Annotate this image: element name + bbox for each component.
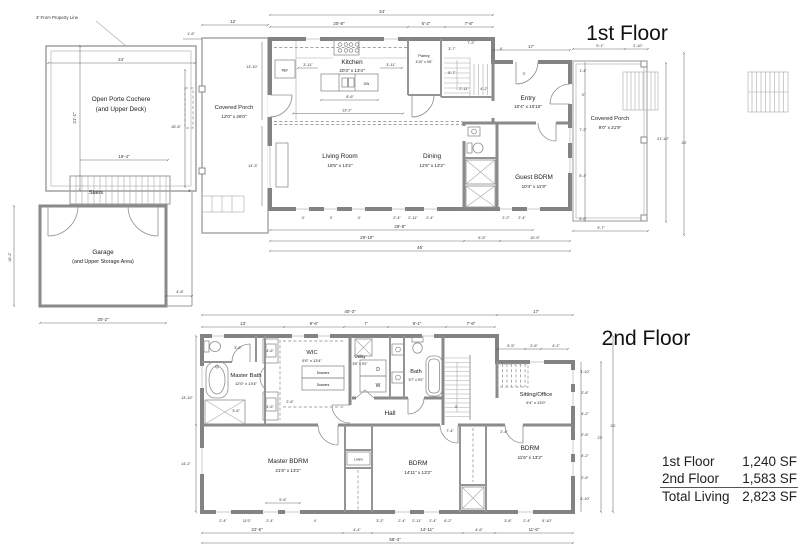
- dim-label: 29'-10": [360, 235, 374, 240]
- dim-label: 2'-4": [219, 519, 227, 523]
- room-label-covered-porch-right: Covered Porch: [591, 116, 630, 122]
- dim-label: 5'-6": [279, 498, 287, 502]
- dim-label: 11'0": [243, 519, 252, 523]
- dim-label: 6'-2": [422, 21, 431, 26]
- dim-label: 22'-6": [251, 527, 263, 532]
- room-size-master-bdrm: 21'6" x 13'2": [275, 468, 301, 473]
- dim-label: 4': [314, 519, 317, 523]
- dim-label: 19'-4": [118, 154, 130, 159]
- dim-label: 2'-6": [581, 391, 589, 395]
- room-label-wic: WIC: [306, 350, 317, 356]
- area-row-label: 2nd Floor: [662, 471, 720, 486]
- dim-label: 13': [240, 321, 246, 326]
- dim-label: 7': [364, 321, 367, 326]
- dim-label: 2'-11": [412, 519, 422, 523]
- dim-label: 4': [500, 47, 503, 51]
- dim-label: 14'-2": [181, 462, 191, 466]
- dim-label: 4'-2": [480, 87, 488, 91]
- area-row-label: Total Living: [662, 489, 730, 504]
- dim-label: 13'-10": [181, 396, 193, 400]
- dim-label: 20'-8": [333, 21, 345, 26]
- room-size-covered-porch-left: 12'0" x 26'0": [221, 114, 247, 119]
- property-line-note: 3' From Property Line: [36, 15, 79, 20]
- area-row-label: 1st Floor: [662, 454, 715, 469]
- dim-label: 17': [528, 44, 534, 49]
- dim-label: 4'-2": [552, 344, 560, 348]
- dim-label: 2'-4": [398, 519, 406, 523]
- room-size-covered-porch-right: 9'0" x 21'9": [599, 125, 622, 130]
- dim-label: 3'-6": [232, 409, 240, 413]
- dim-label: 5'-5": [507, 344, 515, 348]
- room-size-pantry: 4'10" x 4'6": [416, 60, 434, 64]
- room-label-bdrm2: BDRM: [409, 460, 428, 467]
- dim-label: 2'-4": [500, 430, 508, 434]
- room-label-utility: Utility: [354, 354, 366, 359]
- dim-label: 4'-2": [581, 454, 589, 458]
- dim-label: 2'-11": [408, 216, 418, 220]
- dim-label: 24': [118, 57, 124, 62]
- dim-label: 14'-3": [248, 164, 258, 168]
- dim-label: 2'-11": [459, 87, 469, 91]
- floor2-plan: 2nd Floor: [181, 309, 690, 543]
- dim-label: 7'-8": [465, 21, 474, 26]
- dim-label: 13'-2": [342, 109, 352, 113]
- dim-label: 5'-4": [579, 174, 587, 178]
- dim-label: 3'-7": [448, 47, 456, 51]
- room-label-linen: Linen: [354, 458, 362, 462]
- area-row-value: 1,240 SF: [742, 454, 797, 469]
- dim-label: 10'-9": [530, 236, 540, 240]
- room-size-dining: 12'6" x 13'2": [419, 163, 445, 168]
- room-label-bdrm3: BDRM: [521, 445, 540, 452]
- dim-label: 4': [188, 189, 191, 193]
- garage: Garage (and Upper Storage Area): [40, 191, 192, 306]
- dim-label: 3'-6": [234, 346, 242, 350]
- room-label-garage-2: (and Upper Storage Area): [72, 259, 134, 265]
- room-label-guest: Guest BDRM: [515, 174, 553, 181]
- washer-label: W: [376, 383, 381, 389]
- dim-label: 4'-6": [266, 349, 274, 353]
- dim-label: 3': [455, 405, 458, 409]
- dishwasher-label: DW: [364, 82, 370, 86]
- dim-label: 4'-0": [579, 217, 587, 221]
- room-size-bdrm3: 11'6" x 13'2": [518, 455, 543, 460]
- dim-label: 23': [598, 436, 603, 440]
- room-label-garage: Garage: [92, 249, 114, 256]
- dim-label: 5'-5": [478, 236, 486, 240]
- dim-label: 21'-10": [657, 137, 669, 141]
- dim-label: 9'-1": [413, 321, 422, 326]
- floor1-title: 1st Floor: [586, 22, 668, 45]
- floor2-title: 2nd Floor: [602, 327, 691, 350]
- dim-label: 9'-1": [596, 44, 604, 48]
- dim-label: 29'-8": [394, 224, 406, 229]
- dim-label: 3'-11": [386, 63, 396, 67]
- dryer-label: D: [376, 367, 380, 373]
- dim-label: 9'-7": [597, 226, 605, 230]
- exterior-stairs: Stairs: [70, 176, 170, 204]
- area-row-value: 1,583 SF: [742, 471, 797, 486]
- dim-label: 26'-6": [171, 125, 181, 129]
- room-size-master-bath: 12'0" x 13'4": [235, 381, 258, 386]
- dim-label: 24': [682, 141, 687, 145]
- dim-label: 5'-10": [542, 519, 552, 523]
- dim-label: 2'-6": [286, 400, 294, 404]
- floor1-plan: 1st Floor 3' From Property Line Open Por…: [8, 9, 788, 323]
- dim-label: 4'-6": [266, 405, 274, 409]
- room-label-master-bdrm: Master BDRM: [268, 458, 308, 465]
- dim-label: 2'-6": [581, 476, 589, 480]
- dim-label: 40'-3": [344, 309, 356, 314]
- dim-label: 2'-6": [581, 433, 589, 437]
- dim-label: 46': [417, 245, 423, 250]
- dim-label: 4'-2": [581, 412, 589, 416]
- dim-label: 3'-11": [303, 63, 313, 67]
- dim-label: 7'-8": [467, 321, 476, 326]
- dim-label: 16'-2": [8, 252, 12, 262]
- dim-label: 2'-4": [429, 519, 437, 523]
- room-label-covered-porch-left: Covered Porch: [215, 105, 254, 111]
- room-label-master-bath: Master Bath: [230, 373, 261, 379]
- dim-label: 34': [379, 9, 385, 14]
- dim-label: 17': [533, 309, 539, 314]
- covered-porch-right: Covered Porch 9'0" x 21'9": [573, 61, 788, 221]
- dim-label: 2'-6": [530, 344, 538, 348]
- dim-label: 5'-7": [448, 71, 456, 75]
- dim-label: 2'-4": [523, 519, 531, 523]
- room-label-entry: Entry: [521, 95, 537, 102]
- room-label-hall: Hall: [384, 410, 395, 417]
- room-label-pantry: Pantry: [418, 53, 430, 58]
- dim-label: 9'-6": [310, 321, 319, 326]
- dim-label: 1'-6": [187, 32, 195, 36]
- porte-cochere: Open Porte Cochere (and Upper Deck): [46, 46, 196, 191]
- drawers-label: Drawers: [317, 383, 330, 387]
- dim-label: 7'-2": [579, 128, 587, 132]
- dim-label: 2'-4": [393, 216, 401, 220]
- ref-label: REF: [282, 69, 289, 73]
- room-size-kitchen: 20'3" x 13'4": [339, 68, 365, 73]
- room-label-porte-cochere: Open Porte Cochere: [92, 96, 151, 103]
- room-label-sitting: Sitting/Office: [520, 392, 553, 398]
- dim-label: 2'-4": [518, 216, 526, 220]
- dim-label: 4'-4": [353, 528, 361, 532]
- floor2-walls: [200, 334, 576, 515]
- dim-label: 4'-6": [475, 528, 483, 532]
- dim-label: 3': [302, 216, 305, 220]
- drawers-label: Drawers: [317, 371, 330, 375]
- area-table: 1st Floor 1,240 SF 2nd Floor 1,583 SF To…: [660, 454, 798, 504]
- dim-label: 2'-4": [426, 216, 434, 220]
- room-label-dining: Dining: [423, 153, 442, 160]
- room-size-sitting: 9'4" x 13'0": [526, 400, 546, 405]
- room-size-entry: 10'4" x 10'10": [514, 104, 542, 109]
- floorplan-page: 1st Floor 3' From Property Line Open Por…: [0, 0, 809, 553]
- dim-label: 14'-11": [420, 527, 434, 532]
- dim-label: 24': [611, 424, 616, 428]
- dim-label: 3': [358, 216, 361, 220]
- room-label-kitchen: Kitchen: [341, 59, 363, 66]
- room-label-stairs: Stairs: [89, 190, 104, 196]
- room-size-wic: 9'0" x 13'4": [302, 358, 322, 363]
- dim-label: 3': [582, 93, 585, 97]
- dim-label: 8'-6": [346, 95, 354, 99]
- dim-label: 3': [523, 72, 526, 76]
- room-size-bdrm2: 14'11" x 13'2": [404, 470, 432, 475]
- dim-label: 7'-2": [467, 41, 475, 45]
- dim-label: 20'-2": [97, 317, 109, 322]
- room-size-guest: 10'4" x 11'9": [522, 184, 547, 189]
- dim-label: 2'-10": [633, 44, 643, 48]
- dim-label: 21'-1": [72, 112, 77, 124]
- dim-label: 7'-4": [446, 429, 454, 433]
- floorplan-drawing: 1st Floor 3' From Property Line Open Por…: [0, 0, 809, 553]
- dim-label: 3'-2": [376, 519, 384, 523]
- area-row-value: 2,823 SF: [742, 489, 797, 504]
- room-size-bath: 5'7" x 9'0": [409, 378, 425, 382]
- dim-label: 58'-3": [389, 537, 401, 542]
- dim-label: 6'-2": [444, 519, 452, 523]
- dim-label: 1'-4": [579, 69, 587, 73]
- dim-label: 2'-2": [502, 216, 510, 220]
- dim-label: 11'-6": [529, 527, 540, 532]
- dim-label: 3': [330, 216, 333, 220]
- dim-label: 2'-4": [266, 519, 274, 523]
- room-label-porte-cochere-2: (and Upper Deck): [96, 106, 146, 113]
- dim-label: 3'-10": [580, 497, 590, 501]
- dim-label: 4'-8": [176, 290, 184, 294]
- leader-line: [96, 21, 126, 46]
- room-size-utility: 5'5" x 9'0": [353, 362, 369, 366]
- dim-label: 3'-10": [580, 370, 590, 374]
- room-label-living: Living Room: [322, 153, 358, 160]
- dim-label: 13'-10": [246, 65, 258, 69]
- dim-label: 3'-8": [504, 519, 512, 523]
- dim-label: 12': [230, 19, 236, 24]
- room-size-living: 18'5" x 13'2": [327, 163, 353, 168]
- room-label-bath: Bath: [410, 369, 422, 375]
